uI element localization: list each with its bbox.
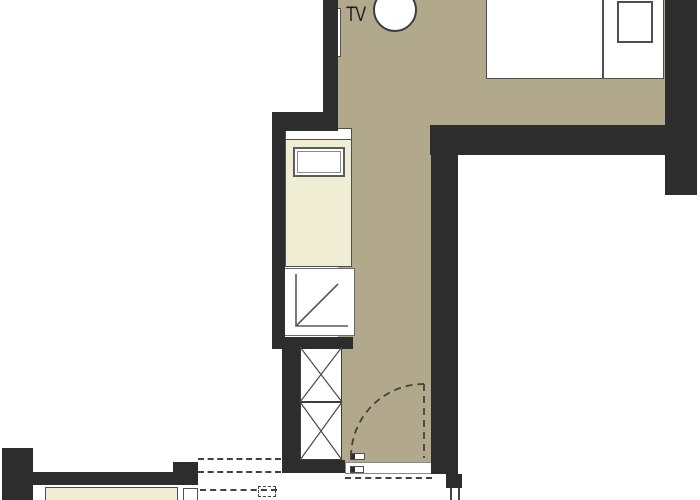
shaft-x-icon-2 xyxy=(300,402,342,460)
shower-symbol-lines xyxy=(296,274,348,326)
plan-lines-overlay xyxy=(0,0,700,500)
floor-plan-canvas: TV xyxy=(0,0,700,500)
round-table-icon xyxy=(374,0,416,31)
door-swing-arc xyxy=(351,384,424,457)
shaft-x-icon-1 xyxy=(300,347,342,402)
